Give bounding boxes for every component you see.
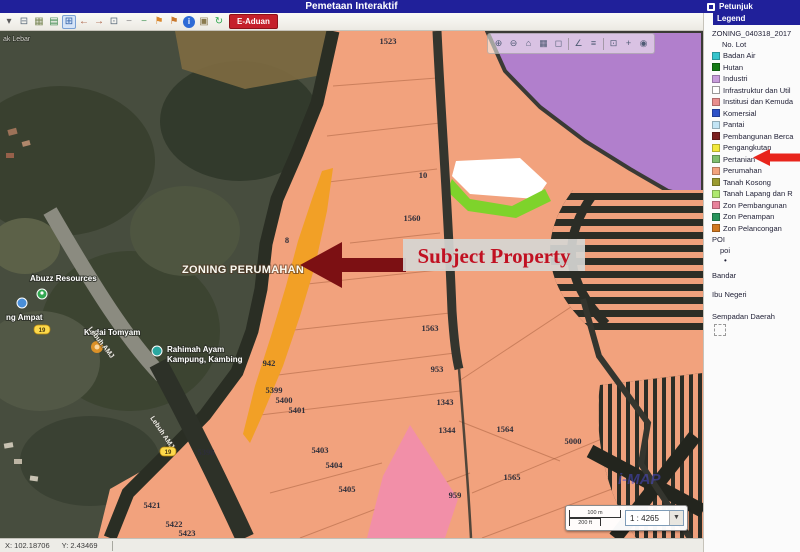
parcel-label: 5399 bbox=[266, 385, 283, 395]
legend-item-zon-penampan[interactable]: Zon Penampan bbox=[712, 211, 800, 223]
legend-swatch bbox=[712, 155, 720, 163]
legend-item-hutan[interactable]: Hutan bbox=[712, 62, 800, 74]
app-title: Pemetaan Interaktif bbox=[0, 0, 703, 13]
legend-header[interactable]: Legend bbox=[713, 13, 800, 25]
petunjuk-button[interactable]: Petunjuk bbox=[703, 0, 800, 13]
legend-swatch bbox=[712, 144, 720, 152]
parcel-label: 5403 bbox=[312, 445, 329, 455]
parcel-label: 1563 bbox=[422, 323, 439, 333]
toolbar-separator bbox=[603, 38, 604, 50]
legend-item-tanah-kosong[interactable]: Tanah Kosong bbox=[712, 177, 800, 189]
subject-property-label: Subject Property bbox=[418, 244, 571, 268]
legend-swatch bbox=[712, 190, 720, 198]
legend-item-komersial[interactable]: Komersial bbox=[712, 108, 800, 120]
legend-swatch bbox=[712, 109, 720, 117]
imap-watermark: i-MAP bbox=[618, 471, 661, 488]
parcel-label: 5404 bbox=[326, 460, 344, 470]
legend-poi-symbol: • bbox=[712, 256, 800, 266]
legend-label: Tanah Kosong bbox=[723, 178, 771, 187]
legend-label: Pantai bbox=[723, 120, 744, 129]
print-icon[interactable]: ⊟ bbox=[17, 15, 31, 29]
coordinate-x: X: 102.18706 bbox=[5, 541, 50, 550]
legend-item-institusi-dan-kemuda[interactable]: Institusi dan Kemuda bbox=[712, 96, 800, 108]
toolbar-separator bbox=[568, 38, 569, 50]
measure-flag-icon[interactable]: ⚑ bbox=[152, 15, 166, 29]
parcel-label: 1564 bbox=[497, 424, 515, 434]
legend-swatch bbox=[712, 63, 720, 71]
parcel-label: 5423 bbox=[179, 528, 196, 538]
scale-bar: 100 m 200 ft bbox=[569, 510, 621, 526]
pan-forward-icon[interactable]: → bbox=[92, 15, 106, 29]
prev-extent-icon[interactable]: − bbox=[122, 15, 136, 29]
parcel-label: 1344 bbox=[439, 425, 457, 435]
route-shield-number: 19 bbox=[165, 450, 172, 456]
scale-dropdown-caret-icon[interactable]: ▼ bbox=[669, 511, 683, 525]
legend-label: Industri bbox=[723, 74, 748, 83]
scale-ratio-select[interactable]: 1 : 4265 ▼ bbox=[625, 510, 684, 526]
scale-widget: 100 m 200 ft 1 : 4265 ▼ bbox=[565, 505, 688, 531]
legend-layer-ibu-negeri[interactable]: Ibu Negeri bbox=[712, 289, 800, 300]
legend-item-pantai[interactable]: Pantai bbox=[712, 119, 800, 131]
legend-panel: Legend ZONING_040318_2017 No. Lot Badan … bbox=[703, 13, 800, 552]
legend-items: Badan AirHutanIndustriInfrastruktur dan … bbox=[712, 50, 800, 234]
poi-label: Rahimah Ayam bbox=[167, 345, 224, 354]
parcel-label: 8 bbox=[285, 235, 289, 245]
title-bar: Pemetaan Interaktif Petunjuk bbox=[0, 0, 800, 13]
route-shield-number: 19 bbox=[39, 328, 46, 334]
results-icon[interactable]: ≡ bbox=[587, 37, 600, 50]
locate-icon[interactable]: ◉ bbox=[637, 37, 650, 50]
parcel-label: 5000 bbox=[565, 436, 582, 446]
legend-layer-bandar[interactable]: Bandar bbox=[712, 270, 800, 281]
coordinate-y: Y: 2.43469 bbox=[62, 541, 98, 550]
legend-swatch bbox=[712, 213, 720, 221]
legend-label: Zon Pelancongan bbox=[723, 224, 782, 233]
full-extent-icon[interactable]: ⊡ bbox=[107, 15, 121, 29]
legend-item-tanah-lapang-dan-r[interactable]: Tanah Lapang dan R bbox=[712, 188, 800, 200]
zoom-in-map-icon[interactable]: ⊕ bbox=[492, 37, 505, 50]
parcel-label: 5421 bbox=[144, 500, 161, 510]
petunjuk-icon bbox=[707, 3, 715, 11]
legend-item-zon-pelancongan[interactable]: Zon Pelancongan bbox=[712, 223, 800, 235]
legend-swatch bbox=[712, 52, 720, 60]
sempadan-symbol-icon bbox=[714, 324, 726, 336]
parcel-label: 1565 bbox=[504, 472, 521, 482]
parcel-label: 959 bbox=[449, 490, 462, 500]
legend-item-infrastruktur-dan-util[interactable]: Infrastruktur dan Util bbox=[712, 85, 800, 97]
legend-swatch bbox=[712, 132, 720, 140]
legend-label: Badan Air bbox=[723, 51, 756, 60]
refresh-icon[interactable]: ↻ bbox=[212, 15, 226, 29]
parcel-label: 5405 bbox=[339, 484, 356, 494]
legend-label: Pertanian bbox=[723, 155, 755, 164]
overview-map-icon[interactable]: ▣ bbox=[197, 15, 211, 29]
legend-swatch bbox=[712, 167, 720, 175]
parcel-label: 1343 bbox=[437, 397, 454, 407]
pan-back-icon[interactable]: ← bbox=[77, 15, 91, 29]
parcel-label: 5398 bbox=[198, 447, 215, 457]
zoom-home-icon[interactable]: ⌂ bbox=[522, 37, 535, 50]
legend-swatch bbox=[712, 75, 720, 83]
map-toolbar: ⊕⊖⌂▦◻∠≡⊡+◉ bbox=[487, 33, 655, 54]
legend-swatch bbox=[712, 224, 720, 232]
scale-bar-metric: 100 m bbox=[569, 510, 621, 518]
clear-graphics-icon[interactable]: ◻ bbox=[552, 37, 565, 50]
legend-swatch bbox=[712, 121, 720, 129]
zoom-out-map-icon[interactable]: ⊖ bbox=[507, 37, 520, 50]
status-bar: X: 102.18706 Y: 2.43469 bbox=[0, 538, 703, 552]
legend-label: Infrastruktur dan Util bbox=[723, 86, 791, 95]
legend-item-pembangunan-berca[interactable]: Pembangunan Berca bbox=[712, 131, 800, 143]
legend-layer-sempadan[interactable]: Sempadan Daerah bbox=[712, 311, 800, 322]
parcel-label: 1560 bbox=[404, 213, 421, 223]
legend-label: Perumahan bbox=[723, 166, 762, 175]
petunjuk-label: Petunjuk bbox=[719, 2, 753, 11]
scale-ratio-value: 1 : 4265 bbox=[630, 514, 659, 523]
dropdown-caret-icon[interactable]: ▾ bbox=[2, 15, 16, 29]
legend-label: Tanah Lapang dan R bbox=[723, 189, 793, 198]
zoom-window-icon[interactable]: ⊞ bbox=[62, 15, 76, 29]
legend-item-industri[interactable]: Industri bbox=[712, 73, 800, 85]
legend-item-badan-air[interactable]: Badan Air bbox=[712, 50, 800, 62]
legend-item-perumahan[interactable]: Perumahan bbox=[712, 165, 800, 177]
legend-label: Hutan bbox=[723, 63, 743, 72]
select-extent-icon[interactable]: ⊡ bbox=[607, 37, 620, 50]
parcel-label: 1523 bbox=[380, 36, 397, 46]
legend-sublayer-no-lot[interactable]: No. Lot bbox=[712, 39, 800, 50]
abuzz-pin-dot bbox=[40, 291, 43, 294]
poi-label: Kampung, Kambing bbox=[167, 355, 243, 364]
measure-icon[interactable]: ∠ bbox=[572, 37, 585, 50]
legend-highlight-arrow-icon bbox=[753, 149, 800, 166]
legend-poi-sublayer[interactable]: poi bbox=[712, 245, 800, 256]
image-tool-icon[interactable]: ▦ bbox=[32, 15, 46, 29]
parcel-label: 953 bbox=[431, 364, 444, 374]
legend-layer-title[interactable]: ZONING_040318_2017 bbox=[712, 29, 800, 39]
parcel-label: 5401 bbox=[289, 405, 306, 415]
legend-label: Zon Pembangunan bbox=[723, 201, 787, 210]
basemap-icon[interactable]: ▦ bbox=[537, 37, 550, 50]
ampat-pin-icon[interactable] bbox=[17, 298, 27, 308]
area-flag-icon[interactable]: ⚑ bbox=[167, 15, 181, 29]
legend-label: Institusi dan Kemuda bbox=[723, 97, 793, 106]
status-divider bbox=[112, 541, 113, 551]
legend-swatch bbox=[712, 201, 720, 209]
main-toolbar: ▾⊟▦▤⊞←→⊡−−⚑⚑i▣↻ E-Aduan bbox=[0, 13, 703, 31]
legend-swatch bbox=[712, 98, 720, 106]
e-aduan-button[interactable]: E-Aduan bbox=[229, 14, 278, 29]
legend-label: Komersial bbox=[723, 109, 756, 118]
legend-item-zon-pembangunan[interactable]: Zon Pembangunan bbox=[712, 200, 800, 212]
poi-label: ng Ampat bbox=[6, 313, 43, 322]
place-name-label: ak Lebar bbox=[3, 36, 31, 43]
legend-label: Pembangunan Berca bbox=[723, 132, 793, 141]
parcel-label: 942 bbox=[263, 358, 276, 368]
legend-label: Zon Penampan bbox=[723, 212, 774, 221]
layers-icon[interactable]: ▤ bbox=[47, 15, 61, 29]
legend-swatch bbox=[712, 178, 720, 186]
add-point-icon[interactable]: + bbox=[622, 37, 635, 50]
legend-group-poi: POI bbox=[712, 234, 800, 245]
toolbar-icons: ▾⊟▦▤⊞←→⊡−−⚑⚑i▣↻ bbox=[2, 15, 226, 29]
map-canvas[interactable]: 1523101560815639531343134415645000156595… bbox=[0, 31, 703, 538]
parcel-label: 10 bbox=[419, 170, 428, 180]
zoning-perumahan-label: ZONING PERUMAHAN bbox=[182, 264, 304, 276]
legend-body: ZONING_040318_2017 No. Lot Badan AirHuta… bbox=[704, 25, 800, 336]
parcel-label: 5400 bbox=[276, 395, 293, 405]
scale-bar-imperial: 200 ft bbox=[569, 518, 601, 526]
map-viewport[interactable]: 1523101560815639531343134415645000156595… bbox=[0, 31, 703, 538]
identify-icon[interactable]: i bbox=[183, 16, 195, 28]
poi-label: Abuzz Resources bbox=[30, 274, 97, 283]
rahimah-pin-icon[interactable] bbox=[152, 346, 162, 356]
legend-swatch bbox=[712, 86, 720, 94]
next-extent-icon[interactable]: − bbox=[137, 15, 151, 29]
